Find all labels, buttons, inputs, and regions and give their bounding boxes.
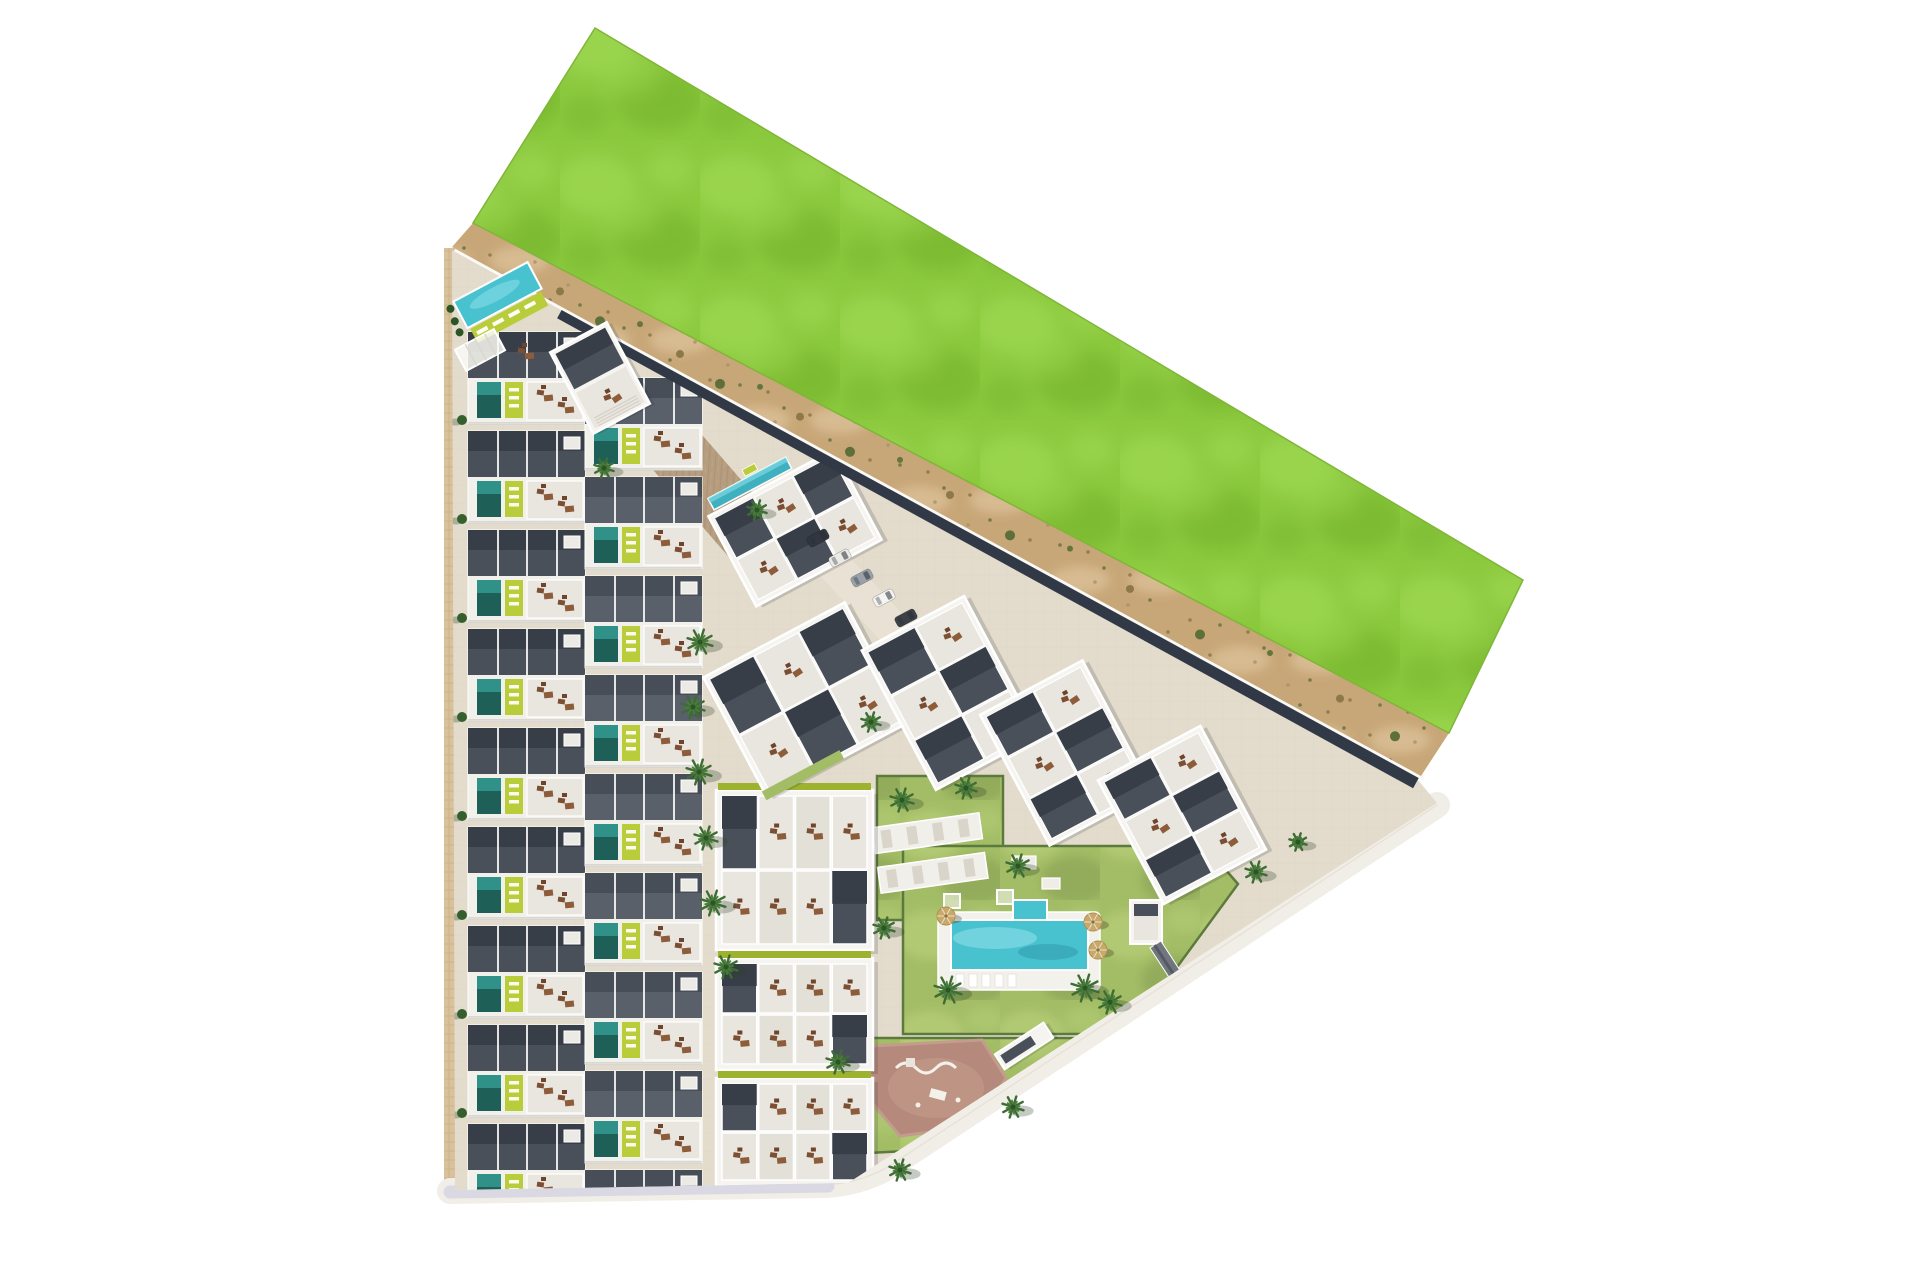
detail-shape — [682, 452, 692, 459]
townhouse-unit — [585, 774, 702, 867]
sun-lounger — [626, 846, 636, 850]
parapet-wall — [497, 827, 499, 873]
detail-shape — [564, 734, 580, 746]
roof-terrace — [644, 725, 700, 763]
detail-shape — [770, 1035, 778, 1041]
detail-shape — [770, 1152, 778, 1158]
sun-lounger — [509, 1089, 519, 1093]
bush — [757, 384, 763, 390]
detail-shape — [658, 728, 663, 732]
parapet-wall — [673, 972, 675, 1018]
detail-shape — [681, 582, 697, 594]
palm-crown — [710, 900, 715, 905]
detail-shape — [594, 725, 618, 738]
palm-crown — [963, 785, 968, 790]
sun-lounger — [626, 1127, 636, 1131]
detail-shape — [658, 629, 663, 633]
sun-lounger — [626, 830, 636, 834]
parapet-wall — [614, 1071, 616, 1117]
bush — [556, 287, 564, 295]
detail-shape — [770, 1103, 778, 1109]
detail-shape — [848, 980, 853, 984]
detail-shape — [722, 1084, 757, 1105]
sun-lounger — [626, 945, 636, 949]
detail-shape — [565, 802, 575, 809]
roof-terrace — [527, 778, 583, 816]
detail-shape — [681, 1077, 697, 1089]
detail-shape — [661, 737, 671, 744]
sun-lounger — [626, 434, 636, 438]
parapet-wall — [614, 576, 616, 622]
detail-shape — [916, 1103, 921, 1108]
sun-lounger — [509, 1180, 519, 1184]
detail-shape — [832, 871, 867, 904]
detail-shape — [1091, 920, 1094, 923]
detail-shape — [525, 352, 535, 359]
bush — [1267, 650, 1273, 656]
detail-shape — [722, 796, 757, 829]
detail-shape — [558, 402, 566, 408]
detail-shape — [594, 1121, 618, 1134]
street-tree — [457, 910, 467, 920]
detail-shape — [682, 848, 692, 855]
palm-crown — [754, 507, 759, 512]
detail-shape — [544, 988, 554, 995]
detail-shape — [522, 343, 527, 347]
detail-shape — [477, 679, 501, 692]
detail-shape — [679, 443, 684, 447]
roof-terrace — [527, 877, 583, 915]
detail-shape — [477, 778, 501, 791]
detail-shape — [811, 1031, 816, 1035]
detail-shape — [806, 1103, 814, 1109]
pool-water-extension — [1013, 900, 1047, 922]
detail-shape — [661, 1133, 671, 1140]
roof-terrace — [644, 1022, 700, 1060]
detail-shape — [814, 1157, 824, 1164]
detail-shape — [468, 818, 585, 821]
parapet-wall — [497, 530, 499, 576]
detail-shape — [562, 397, 567, 401]
palm-crown — [868, 719, 873, 724]
townhouse-unit — [585, 1071, 702, 1164]
parapet-wall — [673, 576, 675, 622]
bush — [1390, 731, 1400, 741]
detail-shape — [777, 908, 787, 915]
detail-shape — [537, 1182, 545, 1188]
detail-shape — [832, 1015, 867, 1037]
detail-shape — [564, 437, 580, 449]
detail-shape — [468, 521, 585, 524]
detail-shape — [541, 484, 546, 488]
parapet-wall — [643, 774, 645, 820]
parapet-wall — [556, 1124, 558, 1170]
parapet-wall — [556, 629, 558, 675]
detail-shape — [564, 536, 580, 548]
detail-shape — [541, 781, 546, 785]
detail-shape — [682, 947, 692, 954]
detail-shape — [585, 963, 702, 966]
detail-shape — [814, 833, 824, 840]
detail-shape — [558, 1095, 566, 1101]
detail-shape — [682, 551, 692, 558]
street-tree — [457, 514, 467, 524]
bush — [1336, 695, 1344, 703]
sun-lounger — [626, 929, 636, 933]
detail-shape — [537, 489, 545, 495]
detail-shape — [661, 440, 671, 447]
detail-shape — [806, 903, 814, 909]
detail-shape — [774, 824, 779, 828]
detail-shape — [737, 1148, 742, 1152]
sun-lounger — [626, 1135, 636, 1139]
parapet-wall — [526, 431, 528, 477]
sun-lounger — [509, 503, 519, 507]
parapet-wall — [673, 675, 675, 721]
roof-terrace — [644, 824, 700, 862]
unit-lawn — [505, 481, 523, 517]
detail-shape — [814, 908, 824, 915]
street-tree — [457, 415, 467, 425]
detail-shape — [565, 703, 575, 710]
detail-shape — [558, 798, 566, 804]
parapet-wall — [614, 972, 616, 1018]
detail-shape — [814, 989, 824, 996]
palm-crown — [601, 465, 606, 470]
townhouse-unit — [468, 926, 585, 1019]
detail-shape — [654, 634, 662, 640]
sun-lounger — [509, 487, 519, 491]
detail-shape — [594, 824, 618, 837]
street-tree — [457, 811, 467, 821]
detail-shape — [777, 1108, 787, 1115]
detail-shape — [811, 980, 816, 984]
roof-terrace — [644, 1121, 700, 1159]
corner-building — [1130, 900, 1162, 944]
detail-shape — [806, 984, 814, 990]
pergola — [997, 890, 1013, 904]
bush — [946, 491, 954, 499]
hedge-strip — [718, 1071, 871, 1078]
sun-lounger — [509, 800, 519, 804]
palm-crown — [899, 797, 904, 802]
unit-lawn — [622, 725, 640, 761]
unit-lawn — [622, 824, 640, 860]
parapet-wall — [497, 1025, 499, 1071]
sun-lounger — [509, 594, 519, 598]
detail-shape — [468, 422, 585, 425]
detail-shape — [558, 600, 566, 606]
townhouse-unit — [468, 530, 585, 623]
sun-lounger — [509, 701, 519, 705]
roof-terrace — [527, 481, 583, 519]
palm-crown — [696, 769, 701, 774]
parapet-wall — [526, 728, 528, 774]
detail-shape — [565, 505, 575, 512]
detail-shape — [594, 527, 618, 540]
sun-lounger — [509, 982, 519, 986]
detail-shape — [681, 483, 697, 495]
detail-shape — [661, 836, 671, 843]
parapet-wall — [526, 530, 528, 576]
detail-shape — [956, 1098, 961, 1103]
detail-shape — [537, 885, 545, 891]
unit-lawn — [622, 1121, 640, 1157]
pool-lounger — [969, 974, 977, 987]
parapet-wall — [526, 926, 528, 972]
unit-lawn — [505, 1075, 523, 1111]
palm-crown — [690, 704, 695, 709]
detail-shape — [733, 1035, 741, 1041]
detail-shape — [774, 899, 779, 903]
parapet-wall — [497, 629, 499, 675]
detail-shape — [537, 786, 545, 792]
detail-shape — [774, 980, 779, 984]
sun-lounger — [626, 1143, 636, 1147]
detail-shape — [562, 496, 567, 500]
sun-lounger — [509, 998, 519, 1002]
parapet-wall — [643, 873, 645, 919]
detail-shape — [654, 832, 662, 838]
detail-shape — [558, 699, 566, 705]
detail-shape — [658, 827, 663, 831]
detail-shape — [562, 892, 567, 896]
apartment-building — [716, 783, 878, 954]
detail-shape — [679, 641, 684, 645]
detail-shape — [850, 1108, 860, 1115]
sun-lounger — [626, 450, 636, 454]
parapet-wall — [643, 972, 645, 1018]
detail-shape — [850, 989, 860, 996]
roof-terrace — [527, 1075, 583, 1113]
detail-shape — [850, 833, 860, 840]
detail-shape — [661, 935, 671, 942]
pool-lounger — [982, 974, 990, 987]
unit-lawn — [622, 428, 640, 464]
palm-crown — [881, 925, 886, 930]
parapet-wall — [556, 728, 558, 774]
palm-crown — [897, 1167, 902, 1172]
detail-shape — [537, 1083, 545, 1089]
unit-lawn — [622, 923, 640, 959]
detail-shape — [675, 745, 683, 751]
detail-shape — [774, 1148, 779, 1152]
detail-shape — [594, 923, 618, 936]
detail-shape — [477, 1174, 501, 1187]
planter — [1042, 878, 1060, 889]
detail-shape — [564, 833, 580, 845]
parapet-wall — [556, 530, 558, 576]
detail-shape — [675, 448, 683, 454]
detail-shape — [468, 620, 585, 623]
detail-shape — [806, 828, 814, 834]
townhouse-unit — [468, 827, 585, 920]
unit-lawn — [505, 877, 523, 913]
sun-lounger — [626, 648, 636, 652]
detail-shape — [558, 996, 566, 1002]
detail-shape — [537, 687, 545, 693]
sun-lounger — [509, 404, 519, 408]
detail-shape — [806, 1152, 814, 1158]
parapet-wall — [526, 1124, 528, 1170]
bush — [845, 447, 855, 457]
roof-terrace — [527, 679, 583, 717]
roof-terrace — [644, 428, 700, 466]
detail-shape — [843, 828, 851, 834]
unit-lawn — [505, 382, 523, 418]
bush — [1005, 530, 1015, 540]
detail-shape — [806, 1035, 814, 1041]
sun-lounger — [509, 792, 519, 796]
detail-shape — [477, 481, 501, 494]
detail-shape — [737, 1031, 742, 1035]
roof-terrace — [527, 976, 583, 1014]
sun-lounger — [509, 784, 519, 788]
sun-lounger — [626, 838, 636, 842]
detail-shape — [682, 1046, 692, 1053]
parapet-wall — [556, 926, 558, 972]
detail-shape — [848, 824, 853, 828]
palm-crown — [835, 1059, 840, 1064]
detail-shape — [585, 765, 702, 768]
palm-crown — [703, 835, 708, 840]
parapet-wall — [497, 1124, 499, 1170]
detail-shape — [679, 1136, 684, 1140]
detail-shape — [562, 694, 567, 698]
sun-lounger — [509, 990, 519, 994]
parapet-wall — [497, 926, 499, 972]
detail-shape — [654, 931, 662, 937]
townhouse-unit — [585, 873, 702, 966]
detail-shape — [953, 927, 1037, 949]
detail-shape — [675, 943, 683, 949]
sun-lounger — [626, 549, 636, 553]
sun-lounger — [509, 495, 519, 499]
detail-shape — [562, 1090, 567, 1094]
parapet-wall — [643, 477, 645, 523]
detail-shape — [654, 733, 662, 739]
detail-shape — [811, 824, 816, 828]
detail-shape — [843, 1103, 851, 1109]
hedge-strip — [718, 951, 871, 958]
detail-shape — [777, 1157, 787, 1164]
detail-shape — [541, 979, 546, 983]
site-plan-page — [0, 0, 1920, 1280]
sun-lounger — [626, 1028, 636, 1032]
parapet-wall — [526, 1025, 528, 1071]
sun-lounger — [626, 739, 636, 743]
street-tree — [457, 1009, 467, 1019]
detail-shape — [594, 626, 618, 639]
detail-shape — [777, 989, 787, 996]
detail-shape — [564, 932, 580, 944]
detail-shape — [541, 682, 546, 686]
detail-shape — [777, 833, 787, 840]
parapet-wall — [614, 873, 616, 919]
parapet-wall — [643, 576, 645, 622]
sun-lounger — [626, 1044, 636, 1048]
detail-shape — [558, 897, 566, 903]
detail-shape — [1096, 948, 1099, 951]
unit-lawn — [505, 976, 523, 1012]
palm-crown — [697, 639, 702, 644]
bush — [897, 457, 903, 463]
detail-shape — [832, 1133, 867, 1154]
palm-crown — [723, 964, 728, 969]
parapet-wall — [643, 675, 645, 721]
detail-shape — [541, 583, 546, 587]
sun-lounger — [509, 396, 519, 400]
street-tree — [457, 1108, 467, 1118]
detail-shape — [565, 1000, 575, 1007]
detail-shape — [675, 1042, 683, 1048]
sun-lounger — [626, 541, 636, 545]
sun-lounger — [509, 1097, 519, 1101]
detail-shape — [477, 976, 501, 989]
detail-shape — [774, 1031, 779, 1035]
detail-shape — [661, 539, 671, 546]
site-plan-rendering — [0, 0, 1920, 1280]
bush — [715, 379, 725, 389]
detail-shape — [468, 719, 585, 722]
detail-shape — [558, 501, 566, 507]
detail-shape — [682, 650, 692, 657]
detail-shape — [565, 1099, 575, 1106]
sun-lounger — [626, 731, 636, 735]
detail-shape — [774, 1099, 779, 1103]
detail-shape — [477, 382, 501, 395]
palm-crown — [1082, 985, 1087, 990]
unit-lawn — [622, 1022, 640, 1058]
detail-shape — [468, 917, 585, 920]
detail-shape — [679, 938, 684, 942]
detail-shape — [518, 348, 526, 354]
detail-shape — [541, 385, 546, 389]
parapet-wall — [673, 873, 675, 919]
detail-shape — [654, 535, 662, 541]
townhouse-unit — [468, 728, 585, 821]
pergola — [944, 894, 960, 908]
detail-shape — [544, 691, 554, 698]
detail-shape — [681, 681, 697, 693]
detail-shape — [544, 394, 554, 401]
roof-terrace — [644, 626, 700, 664]
detail-shape — [814, 1040, 824, 1047]
detail-shape — [544, 592, 554, 599]
detail-shape — [585, 1161, 702, 1164]
apartment-building — [716, 1071, 878, 1190]
detail-shape — [565, 406, 575, 413]
detail-shape — [468, 1016, 585, 1019]
detail-shape — [811, 1099, 816, 1103]
sun-lounger — [626, 442, 636, 446]
detail-shape — [585, 864, 702, 867]
detail-shape — [770, 984, 778, 990]
sun-lounger — [509, 602, 519, 606]
detail-shape — [681, 780, 697, 792]
detail-shape — [770, 828, 778, 834]
detail-shape — [675, 547, 683, 553]
unit-lawn — [622, 626, 640, 662]
detail-shape — [733, 1152, 741, 1158]
townhouse-unit — [585, 972, 702, 1065]
roof-terrace — [644, 527, 700, 565]
bush — [1067, 546, 1073, 552]
detail-shape — [740, 908, 750, 915]
townhouse-unit — [468, 431, 585, 524]
detail-shape — [740, 1157, 750, 1164]
parapet-wall — [556, 1025, 558, 1071]
